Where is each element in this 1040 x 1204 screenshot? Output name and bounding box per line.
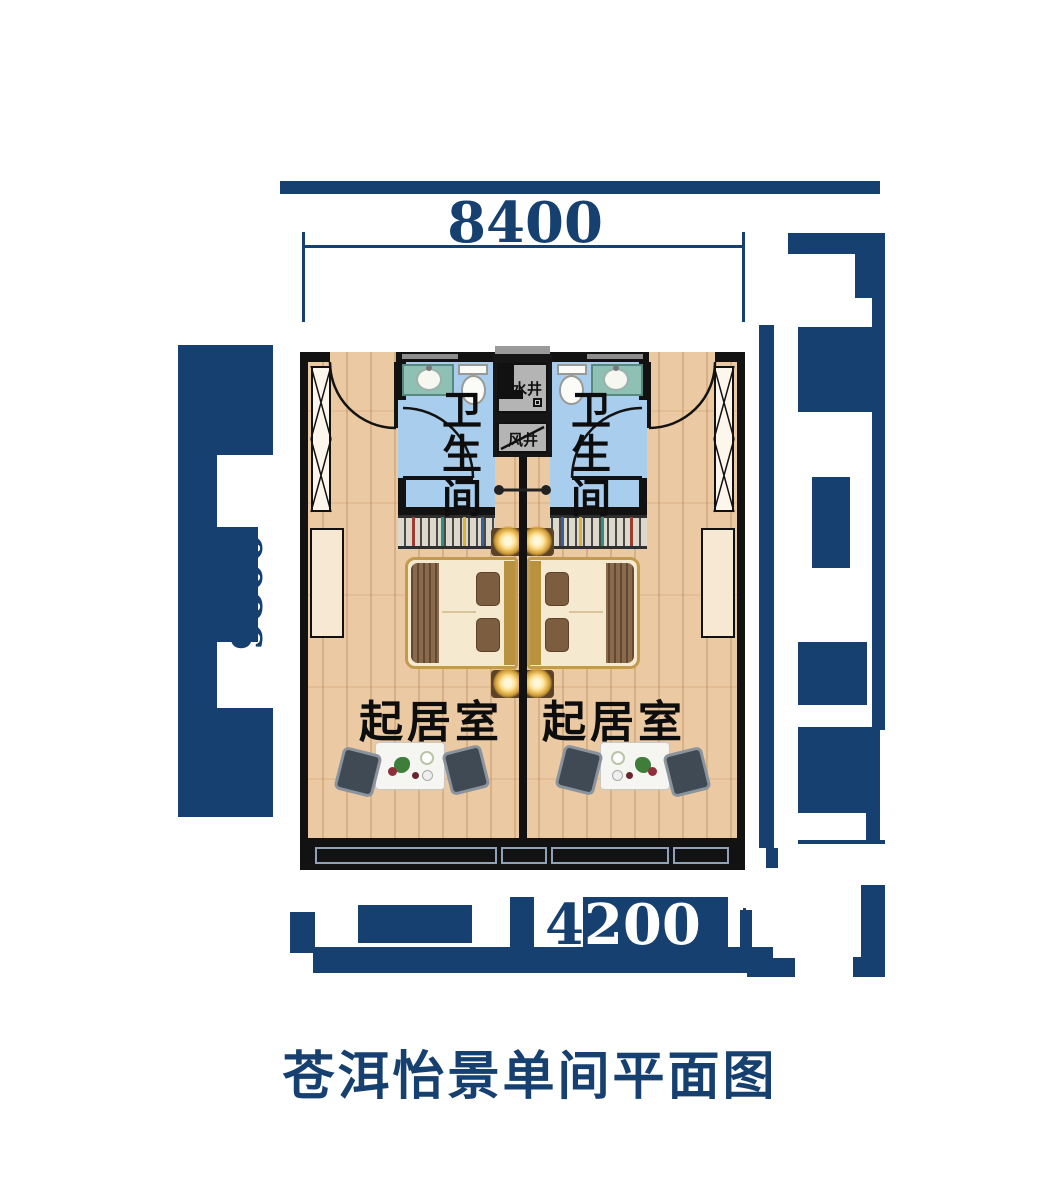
decor-block: [798, 727, 880, 813]
dim-top-tick-left: [302, 232, 305, 322]
decor-block: [872, 297, 885, 730]
decor-block: [798, 642, 867, 705]
dim-bottom-rest: 200: [584, 892, 701, 958]
decor-block: [313, 947, 773, 973]
bathroom-label-right: 卫生间: [563, 388, 613, 522]
dim-bottom-lead: 4: [545, 892, 584, 958]
dim-bottom-text: 4200: [545, 892, 701, 958]
decor-block: [510, 897, 534, 953]
decor-block: [766, 848, 778, 868]
decor-block: [812, 477, 850, 568]
bottom-windows: [300, 352, 745, 870]
decor-block: [855, 254, 885, 298]
dim-top-line: [303, 245, 745, 248]
decor-block: [788, 233, 885, 254]
page-title: 苍洱怡景单间平面图: [230, 1034, 830, 1109]
bathroom-label-left: 卫生间: [434, 388, 484, 522]
living-label-left: 起居室: [341, 686, 521, 750]
decor-block: [178, 345, 273, 455]
floorplan: 水井 风井 卫生间 卫生间 起居室 起居室: [300, 352, 745, 870]
decor-block: [759, 325, 774, 848]
decor-block: [866, 813, 880, 840]
decor-block: [178, 455, 217, 708]
decor-block: [217, 527, 258, 642]
decor-block: [853, 957, 863, 977]
dim-top-tick-right: [742, 232, 745, 322]
decor-block: [861, 885, 885, 977]
decor-block: [290, 912, 315, 953]
decor-block: [358, 905, 472, 943]
floorplan-poster: 8400 9800 4200: [0, 0, 1040, 1204]
decor-block: [798, 327, 878, 412]
living-label-right: 起居室: [524, 686, 704, 750]
decor-block: [798, 840, 885, 844]
decor-block: [178, 708, 273, 817]
decor-block: [280, 181, 880, 194]
